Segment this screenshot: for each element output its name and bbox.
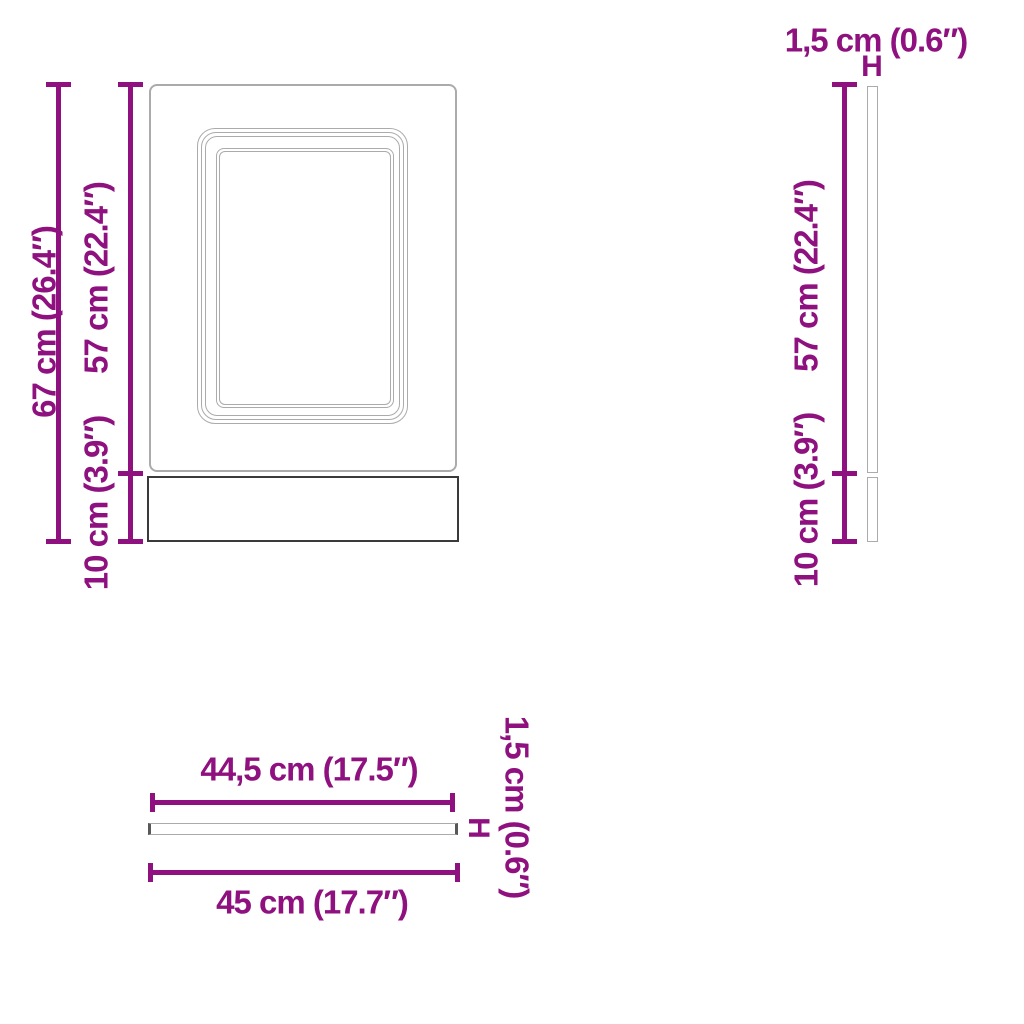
front-plinth-height-label: 10 cm (3.9″) [80,416,113,590]
front-center-panel-inner [219,151,391,405]
side-door-height-label: 57 cm (22.4″) [790,180,823,372]
side-plinth-height-label: 10 cm (3.9″) [790,413,823,587]
side-height-tick-middle [832,471,857,476]
top-total-width-tick-left [148,863,153,882]
top-door-width-tick-right [450,793,455,812]
side-panel-plinth-outline [867,477,878,542]
front-plinth-outline [147,476,459,542]
top-total-width-label: 45 cm (17.7″) [216,886,408,919]
top-total-width-tick-right [455,863,460,882]
top-panel-outline [148,823,458,835]
side-panel-door-outline [867,86,878,473]
front-total-height-tick-top [46,82,71,87]
front-door-height-label: 57 cm (22.4″) [80,182,113,374]
side-height-tick-bottom [832,539,857,544]
top-thickness-label: 1,5 cm (0.6″) [501,716,534,899]
front-total-height-tick-bottom [46,539,71,544]
top-thickness-dimension-marker: H [463,817,493,839]
front-door-height-tick-top [118,82,143,87]
top-total-width-dimension-line [150,870,458,875]
top-door-width-tick-left [150,793,155,812]
side-height-tick-top [832,82,857,87]
side-thickness-dimension-marker: H [861,52,883,82]
front-door-height-tick-middle [118,471,143,476]
top-door-width-dimension-line [152,800,453,805]
dimension-diagram: 67 cm (26.4″) 57 cm (22.4″) 10 cm (3.9″)… [0,0,1024,1024]
front-total-height-label: 67 cm (26.4″) [28,226,61,418]
front-door-height-tick-bottom [118,539,143,544]
top-door-width-label: 44,5 cm (17.5″) [200,753,417,786]
